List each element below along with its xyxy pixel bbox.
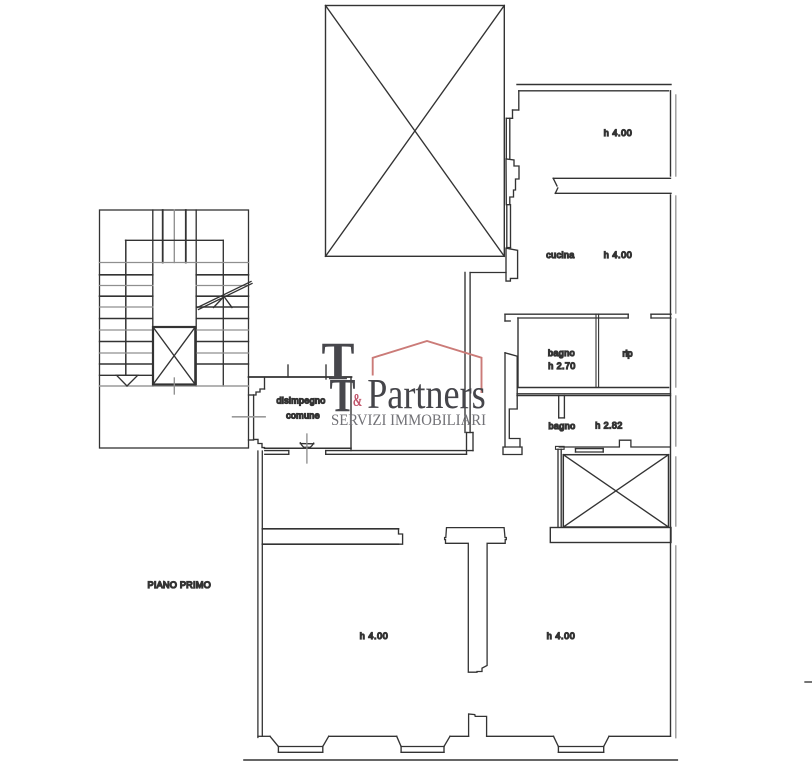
- svg-text:comune: comune: [286, 411, 320, 421]
- svg-text:bagno: bagno: [548, 348, 575, 358]
- svg-text:rip: rip: [622, 349, 632, 359]
- svg-text:h 4.00: h 4.00: [547, 631, 576, 641]
- svg-text:bagno: bagno: [548, 421, 575, 431]
- svg-text:h 4.00: h 4.00: [604, 250, 633, 260]
- svg-text:h 2.82: h 2.82: [595, 421, 622, 431]
- svg-text:PIANO PRIMO: PIANO PRIMO: [148, 580, 211, 590]
- svg-text:disimpegno: disimpegno: [276, 396, 325, 406]
- svg-text:h 2.70: h 2.70: [548, 361, 575, 371]
- svg-text:h 4.00: h 4.00: [604, 128, 633, 138]
- svg-text:Partners: Partners: [367, 371, 486, 418]
- svg-text:&: &: [353, 390, 363, 410]
- svg-text:cucina: cucina: [546, 250, 574, 260]
- svg-text:SERVIZI IMMOBILIARI: SERVIZI IMMOBILIARI: [331, 412, 486, 429]
- svg-text:h 4.00: h 4.00: [360, 631, 389, 641]
